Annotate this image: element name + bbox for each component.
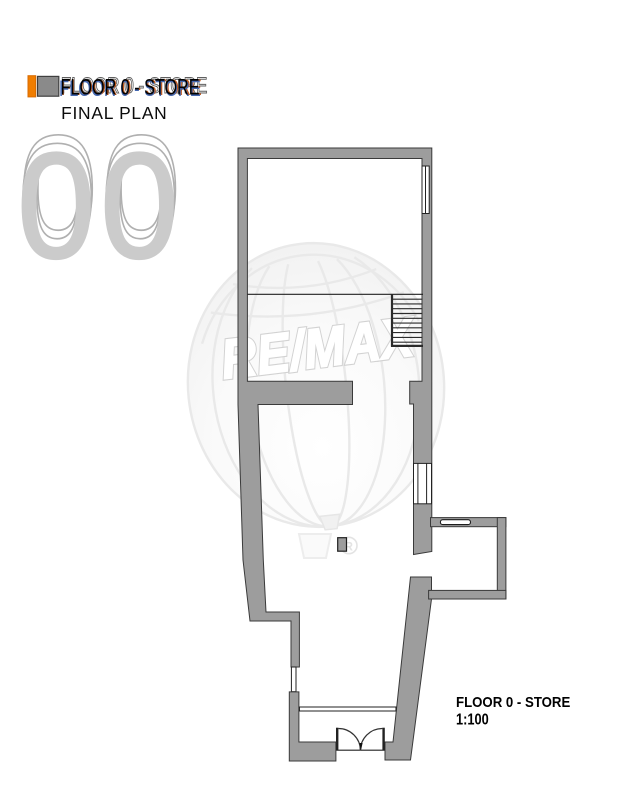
svg-text:FLOOR 0 - STORE: FLOOR 0 - STORE [61,76,200,100]
svg-text:FLOOR 0 - STORE: FLOOR 0 - STORE [456,694,570,711]
svg-text:1:100: 1:100 [456,711,489,728]
svg-text:00: 00 [17,122,183,290]
